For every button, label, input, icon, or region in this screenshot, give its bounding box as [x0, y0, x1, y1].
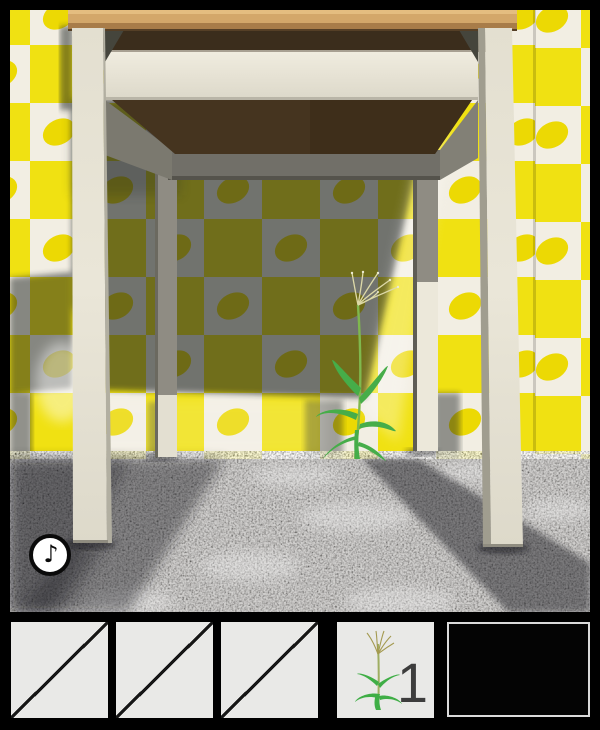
inventory-slot-5-item-view[interactable] — [447, 622, 590, 717]
table-top — [68, 10, 517, 31]
inventory-slot-3[interactable] — [221, 622, 318, 718]
item-count-badge: 1 — [397, 648, 428, 718]
music-note-icon: ♪ — [43, 542, 58, 566]
inventory-slot-1[interactable] — [11, 622, 108, 718]
game-scene — [10, 10, 590, 612]
inventory-slot-4-grass-plant[interactable]: 1 — [337, 622, 434, 718]
table-back-apron — [168, 150, 440, 180]
scene-art — [10, 10, 590, 612]
table-front-apron — [105, 50, 478, 100]
music-toggle-button[interactable]: ♪ — [29, 534, 71, 576]
inventory-slot-2[interactable] — [116, 622, 213, 718]
table-front-left-leg — [72, 28, 112, 543]
game-window: ♪ — [0, 0, 600, 730]
